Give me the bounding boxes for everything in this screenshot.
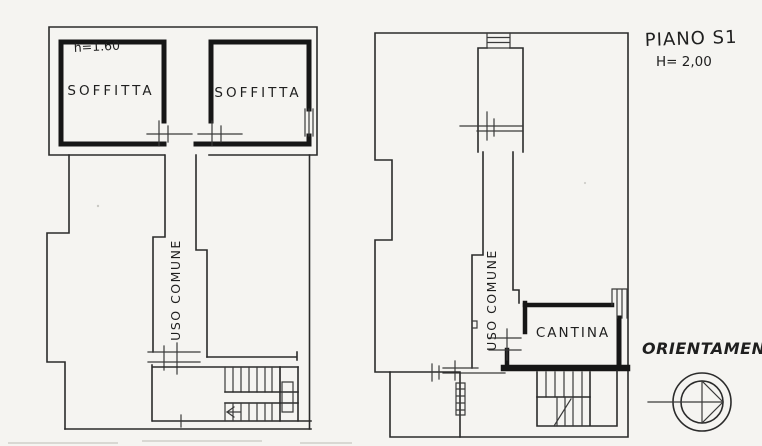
corridor-bottom-hatch [443,361,505,380]
scan-smudges [8,182,586,443]
left-staircase [152,365,298,421]
corridor-door-hatch [148,343,200,374]
floorplan-drawing: h=1.60 SOFFITTA SOFFITTA USO COMUNE [0,0,762,446]
right-plan: PIANO S1 H= 2,00 CANTINA USO COMUNE [375,27,738,437]
soffitta-left-label: SOFFITTA [67,83,154,99]
right-corridor-label: USO COMUNE [484,249,499,351]
orientation-block: ORIENTAMENTO [642,339,762,431]
scanned-floorplan-page: h=1.60 SOFFITTA SOFFITTA USO COMUNE [0,0,762,446]
orientation-label: ORIENTAMENTO [642,339,762,358]
cantina-label: CANTINA [536,325,610,341]
compass-rose-icon [648,373,731,431]
soffitta-right-label: SOFFITTA [214,85,301,101]
bottom-left-room [390,364,465,437]
left-plan: h=1.60 SOFFITTA SOFFITTA USO COMUNE [47,27,317,429]
right-staircase [537,371,617,426]
attic-window-icon [305,109,313,136]
top-window-icon [487,33,510,48]
left-corridor-label: USO COMUNE [168,239,183,341]
attic-height-label: h=1.60 [73,38,120,55]
top-shaft [460,33,523,152]
plan-title: PIANO S1 [644,27,737,51]
plan-height-label: H= 2,00 [656,54,712,70]
cantina-window-icon [612,289,628,318]
shaft-door-hatch [460,112,523,140]
